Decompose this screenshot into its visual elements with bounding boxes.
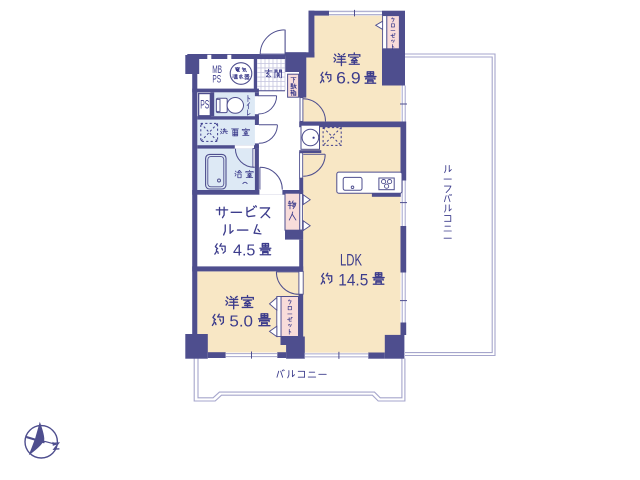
svg-text:PS: PS [212, 74, 221, 86]
svg-text:6.9: 6.9 [336, 70, 361, 88]
svg-text:4.5: 4.5 [233, 243, 256, 260]
svg-text:PS: PS [200, 98, 209, 112]
svg-text:14.5: 14.5 [338, 272, 368, 290]
svg-text:LDK: LDK [340, 251, 362, 269]
svg-text:5.0: 5.0 [229, 314, 253, 331]
